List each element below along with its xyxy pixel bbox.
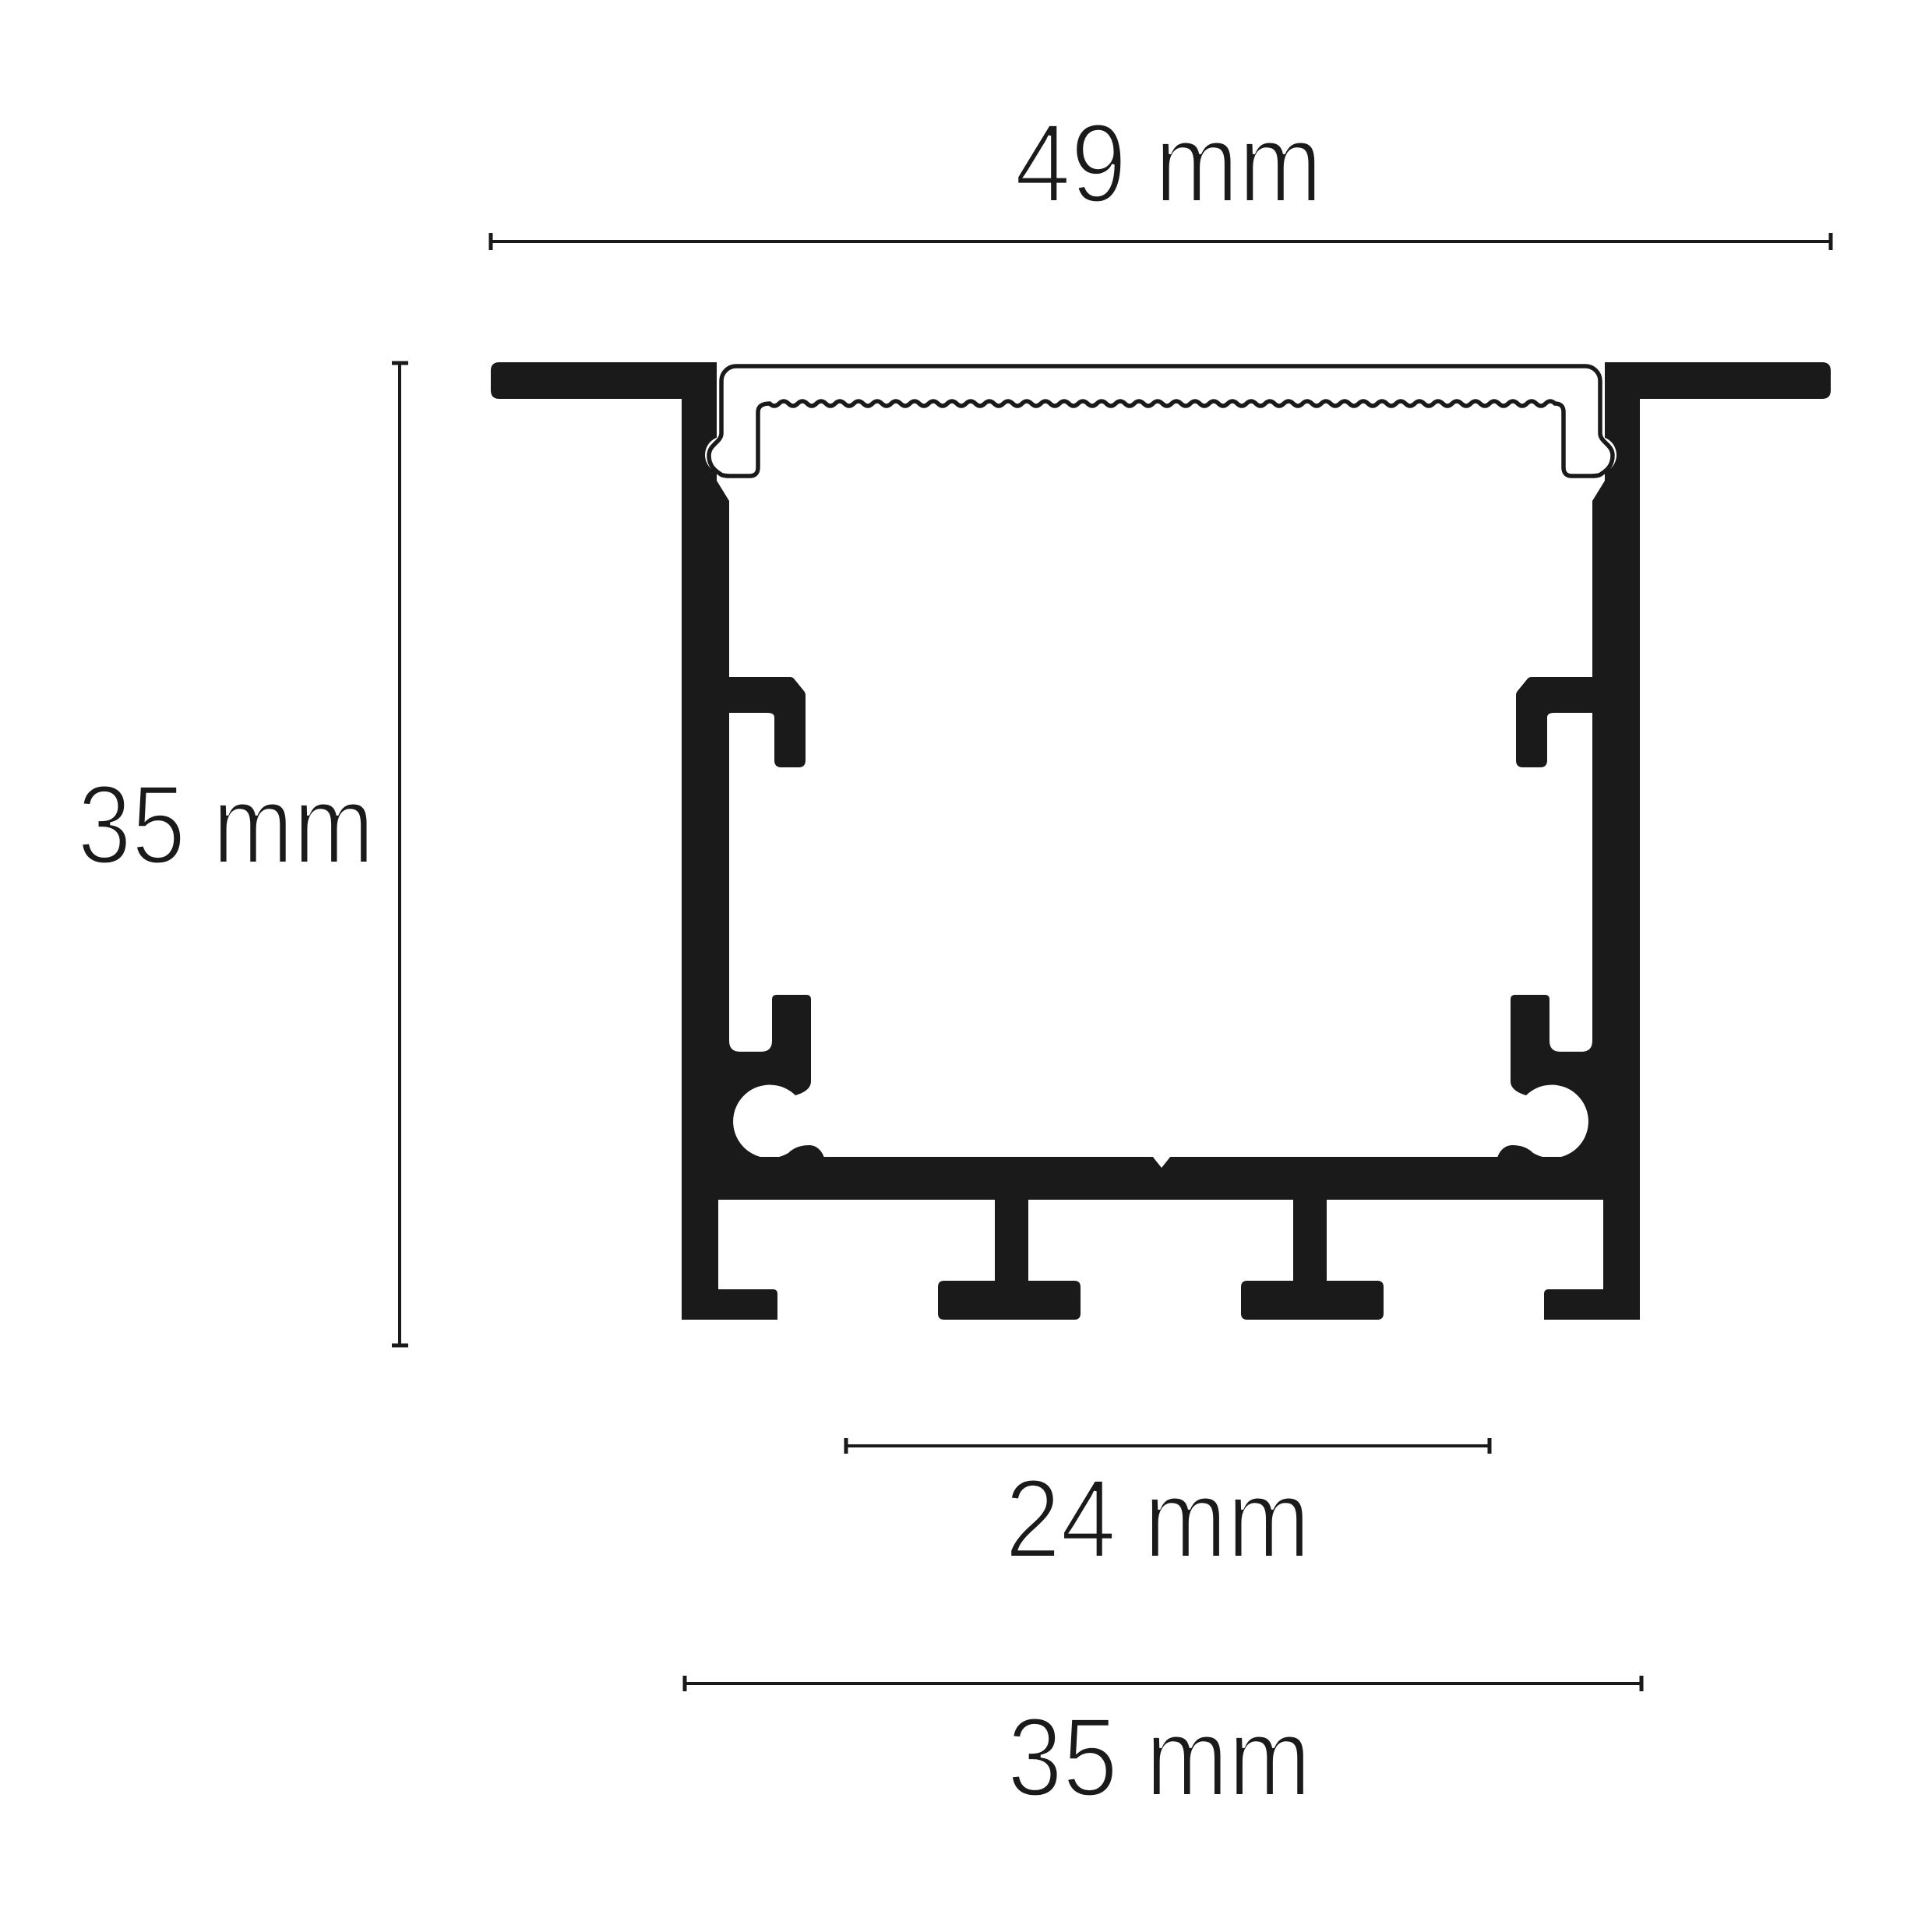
svg-text:49 mm: 49 mm <box>1015 100 1323 226</box>
svg-text:35 mm: 35 mm <box>78 762 375 887</box>
svg-text:24 mm: 24 mm <box>1005 1456 1310 1581</box>
svg-text:35 mm: 35 mm <box>1007 1694 1311 1820</box>
